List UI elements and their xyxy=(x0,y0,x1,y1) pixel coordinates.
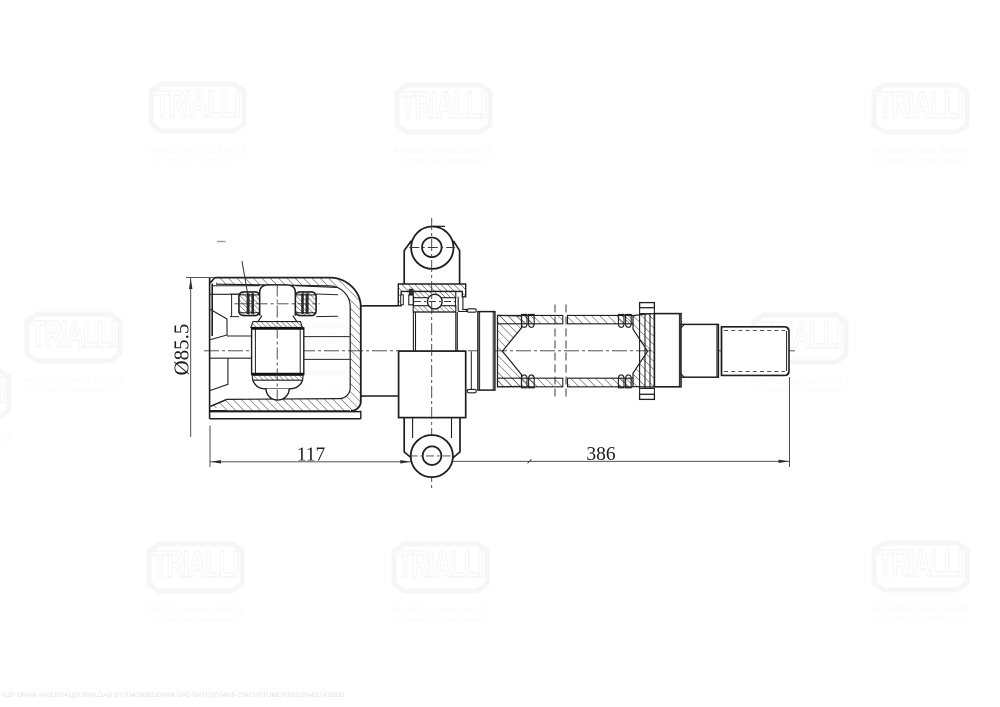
svg-text:GZF DRAW #46510241|DOWNLOAD BY: GZF DRAW #46510241|DOWNLOAD BY 0342908|D… xyxy=(2,692,345,699)
svg-text:117: 117 xyxy=(297,445,326,466)
svg-text:386: 386 xyxy=(586,444,616,465)
svg-text:Ø85.5: Ø85.5 xyxy=(170,324,194,376)
